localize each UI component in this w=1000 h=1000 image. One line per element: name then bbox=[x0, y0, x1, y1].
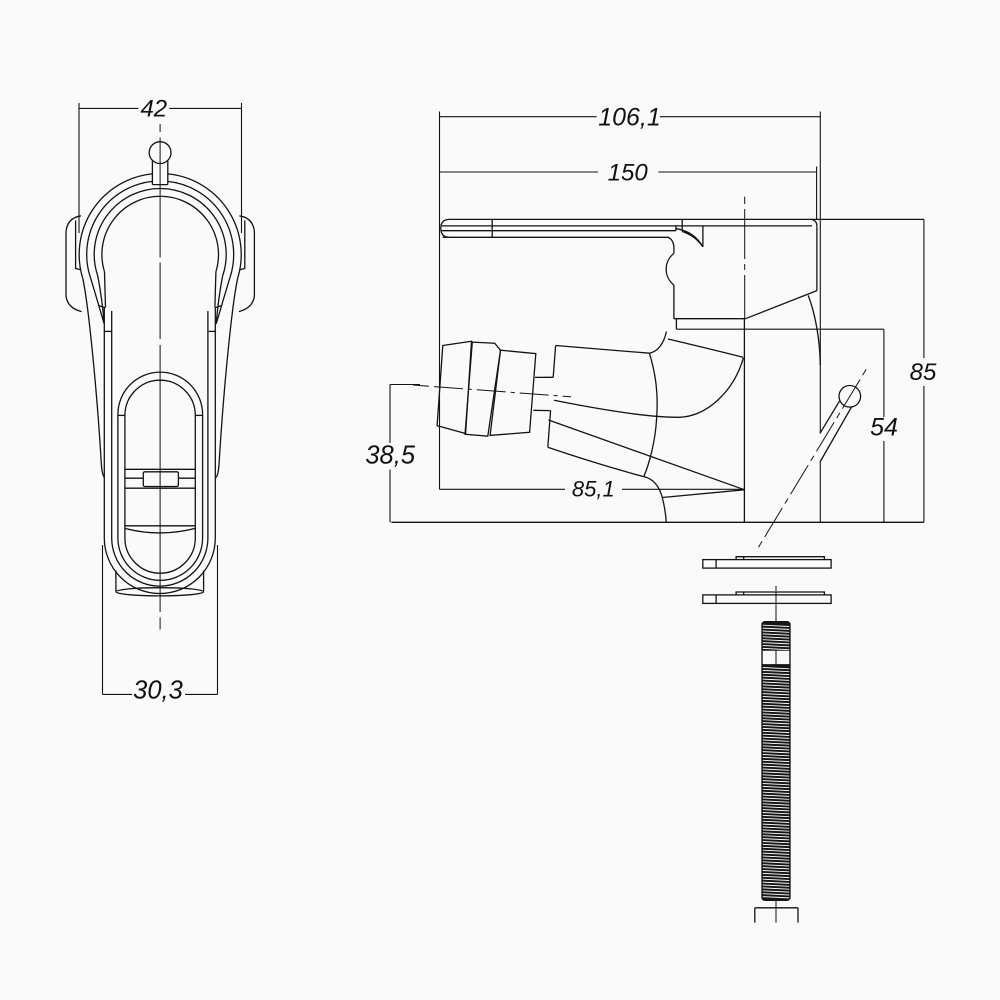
svg-text:106,1: 106,1 bbox=[598, 103, 661, 131]
svg-text:150: 150 bbox=[608, 159, 649, 186]
svg-text:42: 42 bbox=[140, 95, 167, 122]
svg-text:54: 54 bbox=[870, 413, 898, 441]
svg-text:85: 85 bbox=[910, 359, 937, 386]
svg-text:30,3: 30,3 bbox=[133, 676, 183, 704]
svg-text:85,1: 85,1 bbox=[572, 477, 615, 502]
svg-text:38,5: 38,5 bbox=[365, 442, 415, 470]
